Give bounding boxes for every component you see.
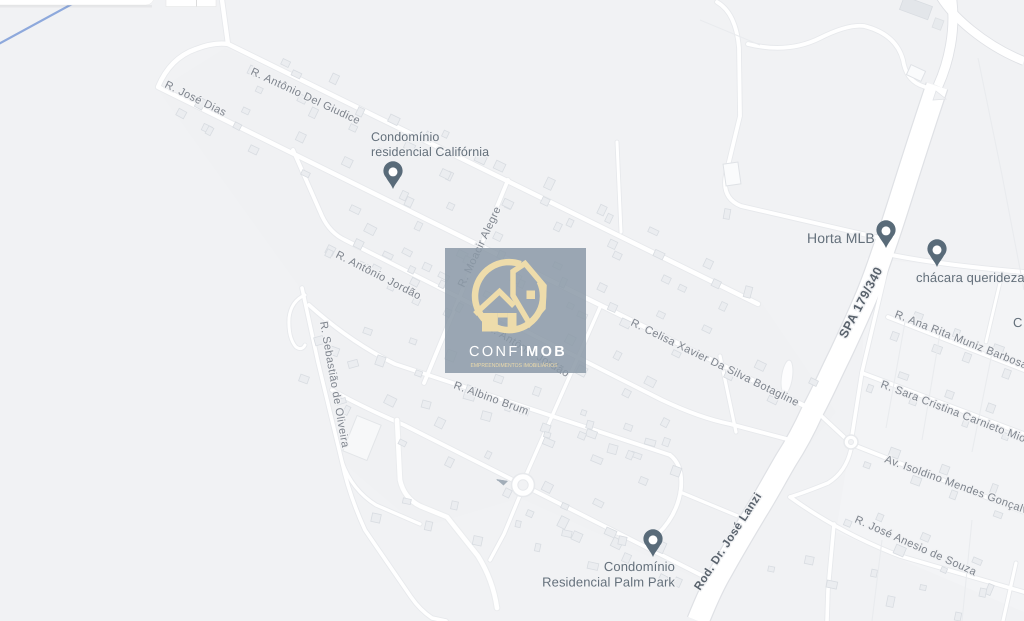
svg-text:EMPREENDIMENTOS IMOBILIÁRIOS: EMPREENDIMENTOS IMOBILIÁRIOS: [471, 362, 558, 369]
svg-text:CONFIMOB: CONFIMOB: [469, 344, 567, 360]
svg-text:chácara queridezas: chácara queridezas: [916, 270, 1024, 285]
svg-text:residencial Califórnia: residencial Califórnia: [371, 145, 489, 159]
svg-text:C: C: [1013, 315, 1022, 330]
svg-text:Condomínio: Condomínio: [371, 130, 439, 144]
svg-text:Condomínio: Condomínio: [604, 559, 675, 574]
svg-text:Horta MLB: Horta MLB: [807, 230, 875, 246]
svg-text:Residencial Palm Park: Residencial Palm Park: [542, 575, 675, 590]
